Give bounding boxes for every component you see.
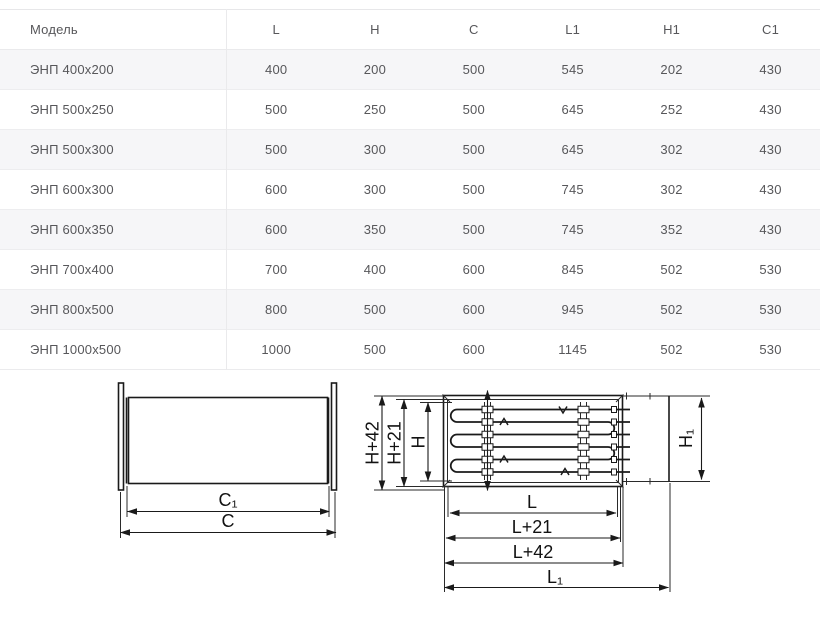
dim-label-l: L	[527, 492, 537, 512]
value-cell: 645	[523, 90, 622, 130]
value-cell: 600	[424, 250, 523, 290]
column-header-2: H	[325, 10, 424, 50]
value-cell: 745	[523, 170, 622, 210]
side-view-drawing: C₁ C	[119, 383, 337, 538]
height-dimensions: H+42 H+21 H	[363, 396, 453, 490]
value-cell: 500	[424, 210, 523, 250]
value-cell: 800	[227, 290, 326, 330]
value-cell: 600	[424, 290, 523, 330]
value-cell: 300	[325, 130, 424, 170]
heater-casing-outline	[443, 395, 624, 488]
length-dimensions: L L+21 L+42 L₁	[445, 483, 671, 592]
value-cell: 430	[721, 130, 820, 170]
column-header-3: C	[424, 10, 523, 50]
table-row: ЭНП 800х500800500600945502530	[0, 290, 820, 330]
value-cell: 400	[325, 250, 424, 290]
table-row: ЭНП 600х350600350500745352430	[0, 210, 820, 250]
value-cell: 600	[227, 170, 326, 210]
dim-label-c: C	[222, 511, 235, 531]
value-cell: 645	[523, 130, 622, 170]
value-cell: 1145	[523, 330, 622, 370]
dim-label-h1: H₁	[676, 429, 696, 448]
value-cell: 352	[622, 210, 721, 250]
column-header-1: L	[227, 10, 326, 50]
value-cell: 500	[424, 170, 523, 210]
value-cell: 530	[721, 290, 820, 330]
dim-label-h: H	[409, 436, 429, 449]
model-cell: ЭНП 400х200	[0, 50, 227, 90]
table-row: ЭНП 400х200400200500545202430	[0, 50, 820, 90]
value-cell: 500	[424, 90, 523, 130]
value-cell: 600	[424, 330, 523, 370]
value-cell: 500	[424, 50, 523, 90]
model-cell: ЭНП 500х300	[0, 130, 227, 170]
value-cell: 252	[622, 90, 721, 130]
model-cell: ЭНП 600х350	[0, 210, 227, 250]
table-row: ЭНП 500х250500250500645252430	[0, 90, 820, 130]
value-cell: 845	[523, 250, 622, 290]
value-cell: 502	[622, 290, 721, 330]
value-cell: 545	[523, 50, 622, 90]
column-header-0: Модель	[0, 10, 227, 50]
dim-label-c1: C₁	[218, 490, 237, 510]
value-cell: 600	[227, 210, 326, 250]
value-cell: 302	[622, 170, 721, 210]
heater-front-drawing: H₁ H+42 H+21 H	[363, 391, 711, 593]
value-cell: 500	[325, 330, 424, 370]
value-cell: 1000	[227, 330, 326, 370]
dim-label-h21: H+21	[385, 421, 405, 465]
model-cell: ЭНП 800х500	[0, 290, 227, 330]
value-cell: 745	[523, 210, 622, 250]
technical-drawings: C₁ C	[0, 370, 820, 622]
value-cell: 500	[424, 130, 523, 170]
table-row: ЭНП 600х300600300500745302430	[0, 170, 820, 210]
element-support-brackets	[482, 402, 589, 480]
dim-label-l21: L+21	[512, 517, 553, 537]
model-cell: ЭНП 700х400	[0, 250, 227, 290]
value-cell: 502	[622, 330, 721, 370]
value-cell: 530	[721, 250, 820, 290]
table-head: МодельLHCL1H1C1	[0, 10, 820, 50]
value-cell: 202	[622, 50, 721, 90]
value-cell: 200	[325, 50, 424, 90]
dim-label-h42: H+42	[363, 421, 383, 465]
value-cell: 430	[721, 50, 820, 90]
value-cell: 430	[721, 170, 820, 210]
value-cell: 302	[622, 130, 721, 170]
value-cell: 502	[622, 250, 721, 290]
value-cell: 700	[227, 250, 326, 290]
table-row: ЭНП 700х400700400600845502530	[0, 250, 820, 290]
value-cell: 250	[325, 90, 424, 130]
table-row: ЭНП 1000х50010005006001145502530	[0, 330, 820, 370]
table-header-row: МодельLHCL1H1C1	[0, 10, 820, 50]
dim-label-l1: L₁	[547, 567, 563, 587]
table-body: ЭНП 400х200400200500545202430ЭНП 500х250…	[0, 50, 820, 370]
table-row: ЭНП 500х300500300500645302430	[0, 130, 820, 170]
connection-duct-stub	[623, 393, 710, 486]
value-cell: 430	[721, 210, 820, 250]
value-cell: 430	[721, 90, 820, 130]
model-cell: ЭНП 600х300	[0, 170, 227, 210]
value-cell: 500	[227, 130, 326, 170]
value-cell: 500	[227, 90, 326, 130]
column-header-5: H1	[622, 10, 721, 50]
duct-side-outline	[119, 383, 337, 490]
column-header-4: L1	[523, 10, 622, 50]
column-header-6: C1	[721, 10, 820, 50]
dimensions-table: МодельLHCL1H1C1 ЭНП 400х2004002005005452…	[0, 9, 820, 370]
value-cell: 350	[325, 210, 424, 250]
value-cell: 945	[523, 290, 622, 330]
dimension-h1: H₁	[676, 398, 702, 480]
heating-element-coil	[451, 407, 630, 476]
value-cell: 300	[325, 170, 424, 210]
value-cell: 400	[227, 50, 326, 90]
spec-sheet-page: МодельLHCL1H1C1 ЭНП 400х2004002005005452…	[0, 0, 820, 622]
model-cell: ЭНП 500х250	[0, 90, 227, 130]
dim-label-l42: L+42	[513, 542, 554, 562]
flow-direction-marks	[500, 407, 569, 476]
model-cell: ЭНП 1000х500	[0, 330, 227, 370]
value-cell: 530	[721, 330, 820, 370]
value-cell: 500	[325, 290, 424, 330]
